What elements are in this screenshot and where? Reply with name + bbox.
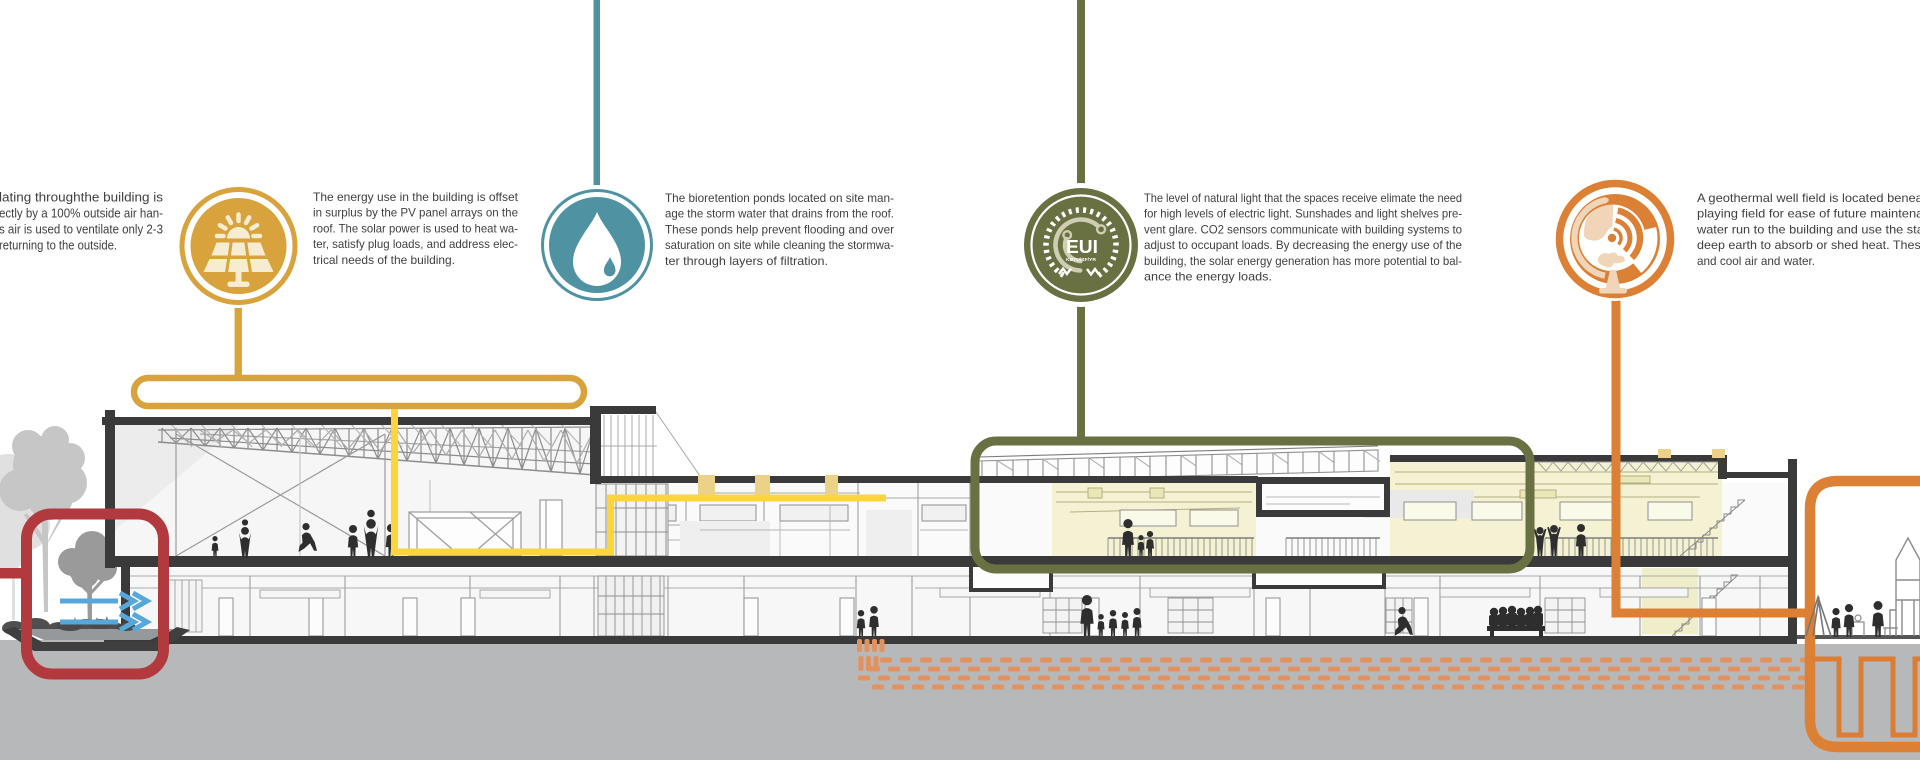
svg-text:KBTU/SF/YR: KBTU/SF/YR <box>1066 257 1096 262</box>
svg-text:ectly by a 100% outside air ha: ectly by a 100% outside air han- <box>0 206 163 221</box>
svg-text:lating throughthe building is: lating throughthe building is <box>0 190 163 205</box>
svg-text:These ponds help prevent flood: These ponds help prevent flooding and ov… <box>665 222 894 236</box>
svg-text:trical needs of the building.: trical needs of the building. <box>313 253 455 267</box>
svg-text:and cool air and water.: and cool air and water. <box>1697 254 1815 268</box>
svg-text:ter, satisfy plug loads, and a: ter, satisfy plug loads, and address ele… <box>313 237 518 251</box>
svg-text:roof. The solar power is used: roof. The solar power is used to heat wa… <box>313 221 518 235</box>
svg-text:A geothermal well field is loc: A geothermal well field is located benea… <box>1697 191 1920 205</box>
svg-text:The bioretention ponds located: The bioretention ponds located on site m… <box>665 191 894 205</box>
svg-text:building, the solar energy gen: building, the solar energy generation ha… <box>1144 254 1462 268</box>
svg-text:playing field for ease of futu: playing field for ease of future mainten… <box>1697 207 1920 221</box>
svg-text:The level of natural light tha: The level of natural light that the spac… <box>1144 191 1462 205</box>
svg-text:vent glare. CO2 sensors commun: vent glare. CO2 sensors communicate with… <box>1144 222 1462 236</box>
svg-text:s air is used to ventilate onl: s air is used to ventilate only 2-3 <box>0 222 163 237</box>
svg-text:adjust to occupant loads. By d: adjust to occupant loads. By decreasing … <box>1144 238 1462 252</box>
svg-text:saturation on site while clean: saturation on site while cleaning the st… <box>665 238 894 252</box>
svg-text:ter through layers of filtrati: ter through layers of filtration. <box>665 254 828 268</box>
svg-text:returning to the outside.: returning to the outside. <box>0 238 117 253</box>
svg-text:in surplus by the PV panel arr: in surplus by the PV panel arrays on the <box>313 206 518 220</box>
svg-text:age the storm water that drain: age the storm water that drains from the… <box>665 207 894 221</box>
svg-text:for high levels of electric li: for high levels of electric light. Sunsh… <box>1144 207 1462 221</box>
svg-text:deep earth to absorb or shed h: deep earth to absorb or shed heat. These… <box>1697 238 1920 252</box>
svg-text:The energy use in the building: The energy use in the building is offset <box>313 190 519 204</box>
svg-text:ance the energy loads.: ance the energy loads. <box>1144 270 1272 284</box>
svg-text:water run to the building and: water run to the building and use the st… <box>1696 222 1920 236</box>
svg-text:EUI: EUI <box>1066 237 1098 257</box>
